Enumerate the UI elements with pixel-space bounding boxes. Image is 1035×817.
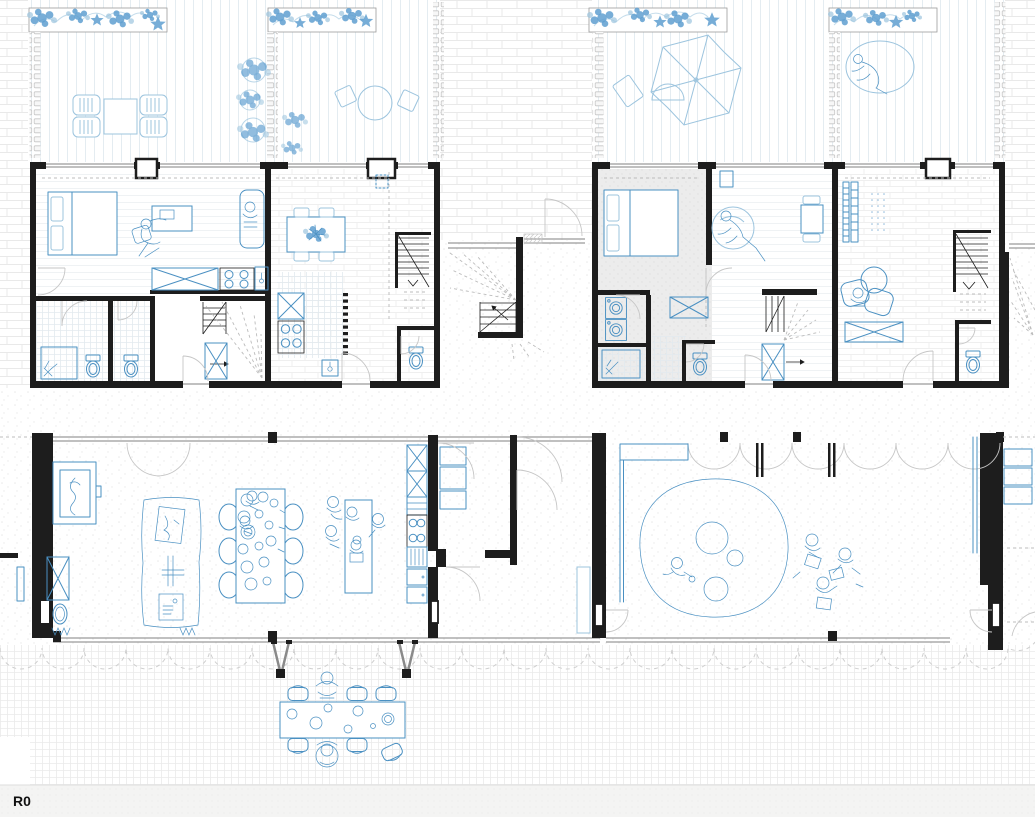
level-label: R0 [13, 793, 31, 809]
planter-3 [587, 8, 727, 32]
stair-handrail-b1 [762, 289, 817, 295]
wall-mirror-frame [53, 462, 101, 524]
upper-floor-building-b [592, 159, 1005, 388]
outdoor-table [280, 702, 405, 738]
upper-floor-building-a [30, 159, 440, 388]
planter-2 [266, 8, 376, 32]
bench [577, 567, 590, 633]
double-bed-b1 [604, 190, 678, 256]
vestibule-wall [510, 435, 517, 565]
pier-right [980, 433, 1003, 585]
ground-floor-building-a [0, 432, 606, 642]
terrace-side-table [104, 99, 137, 134]
unit-a1-bath-floor [36, 300, 154, 382]
vent-box [136, 159, 157, 178]
long-table [236, 489, 285, 603]
planter-4 [828, 8, 937, 32]
mid-ground-stipple [0, 388, 1035, 437]
table-b1 [801, 196, 823, 242]
bookshelf-b2 [843, 182, 858, 242]
rug-b2 [867, 193, 885, 232]
ground-floor-building-b [606, 432, 1035, 650]
paving-grid-bottom [0, 645, 1035, 785]
street-band [0, 785, 1035, 817]
planter-1 [27, 8, 167, 32]
stair-handrail-a1 [200, 296, 266, 301]
floor-plan-sheet: R0 [0, 0, 1035, 817]
vent-box [926, 159, 950, 178]
double-bed-a1 [48, 192, 117, 255]
kitchen-wall [428, 435, 438, 551]
